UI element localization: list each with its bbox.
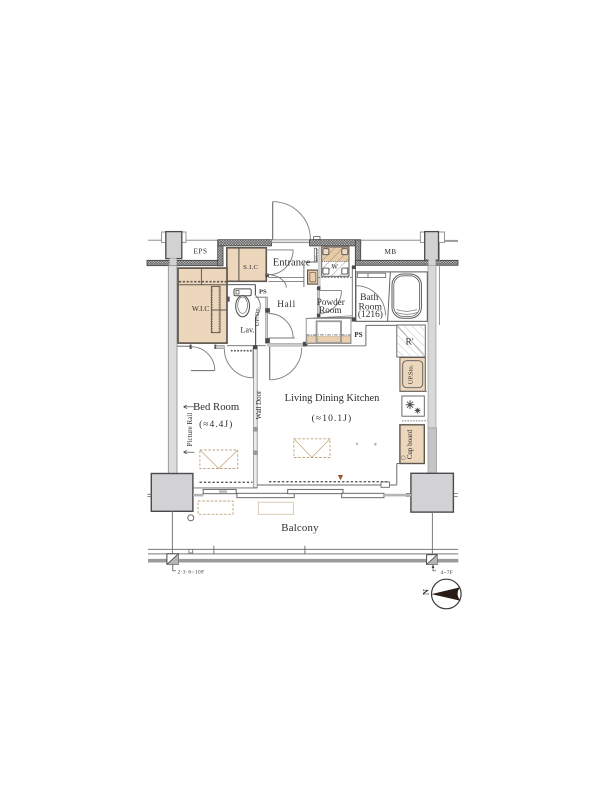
svg-text:Picture Rail: Picture Rail (186, 413, 194, 447)
svg-text:(≈10.1J): (≈10.1J) (312, 413, 353, 424)
svg-text:Cup board: Cup board (406, 429, 414, 459)
svg-text:PS: PS (354, 331, 362, 339)
svg-text:MB: MB (385, 248, 397, 256)
svg-text:Room: Room (319, 305, 341, 315)
svg-text:(≈4.4J): (≈4.4J) (199, 419, 233, 430)
svg-text:W.I.C: W.I.C (192, 304, 209, 313)
svg-text:Balcony: Balcony (281, 522, 319, 534)
svg-text:(1216): (1216) (358, 309, 383, 320)
svg-text:S.I.C: S.I.C (243, 264, 258, 271)
svg-text:N: N (422, 589, 431, 595)
svg-text:Entrance: Entrance (273, 258, 311, 269)
svg-text:4~7F: 4~7F (441, 570, 454, 576)
svg-text:Bed Room: Bed Room (193, 401, 240, 413)
svg-text:Living Dining Kitchen: Living Dining Kitchen (285, 393, 380, 404)
svg-text:Lav.: Lav. (240, 326, 254, 335)
svg-text:Hall: Hall (277, 299, 296, 309)
svg-text:2·3·6~10F: 2·3·6~10F (178, 569, 205, 575)
svg-text:W: W (331, 264, 338, 271)
svg-text:Wall Door: Wall Door (256, 390, 263, 419)
svg-text:Rʹ: Rʹ (406, 337, 414, 347)
svg-text:EPS: EPS (193, 247, 207, 256)
svg-text:UP/Sto.: UP/Sto. (254, 306, 261, 326)
svg-text:PS: PS (259, 289, 267, 296)
svg-text:UP.Sto.: UP.Sto. (408, 364, 415, 384)
